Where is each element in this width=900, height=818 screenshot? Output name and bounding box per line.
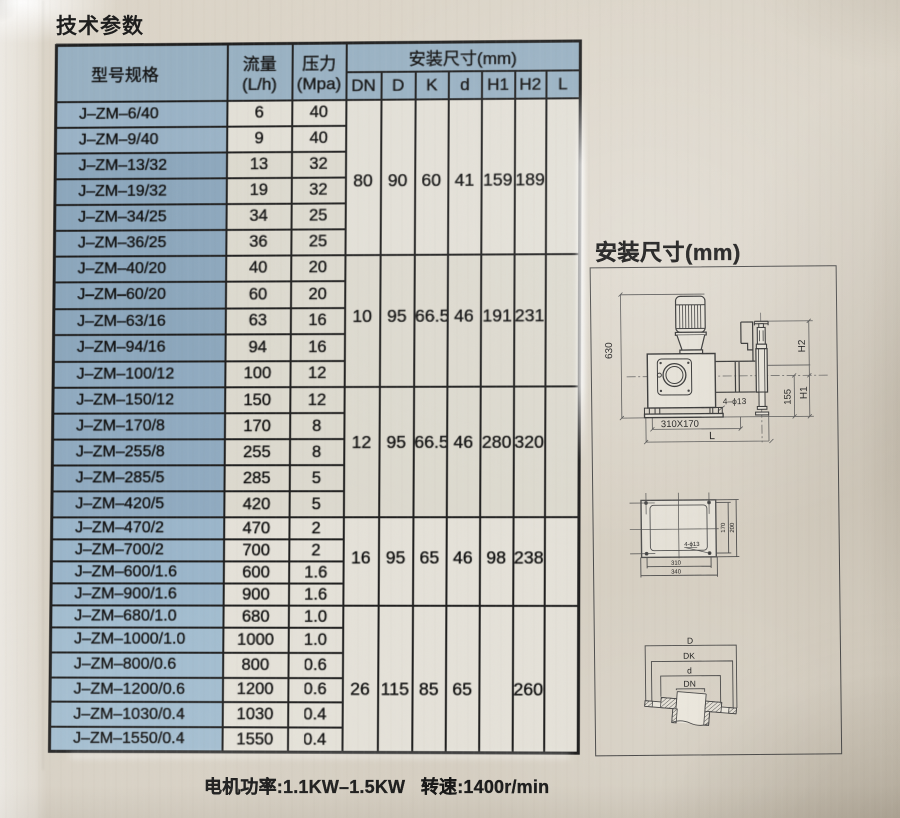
svg-text:DN: DN bbox=[683, 679, 695, 689]
svg-text:H1: H1 bbox=[799, 386, 810, 399]
svg-text:H2: H2 bbox=[797, 339, 808, 352]
svg-text:L: L bbox=[709, 430, 715, 442]
svg-text:170: 170 bbox=[721, 522, 727, 533]
svg-text:4–ϕ13: 4–ϕ13 bbox=[723, 396, 747, 406]
svg-text:200: 200 bbox=[730, 522, 736, 533]
svg-text:310: 310 bbox=[671, 561, 682, 567]
svg-text:d: d bbox=[687, 665, 692, 675]
svg-text:310X170: 310X170 bbox=[661, 419, 699, 430]
svg-text:155: 155 bbox=[783, 389, 794, 405]
svg-text:630: 630 bbox=[604, 342, 615, 359]
svg-text:340: 340 bbox=[671, 569, 682, 575]
svg-text:4-ϕ13: 4-ϕ13 bbox=[684, 542, 700, 548]
svg-text:D: D bbox=[687, 636, 693, 646]
svg-text:DK: DK bbox=[683, 651, 695, 661]
